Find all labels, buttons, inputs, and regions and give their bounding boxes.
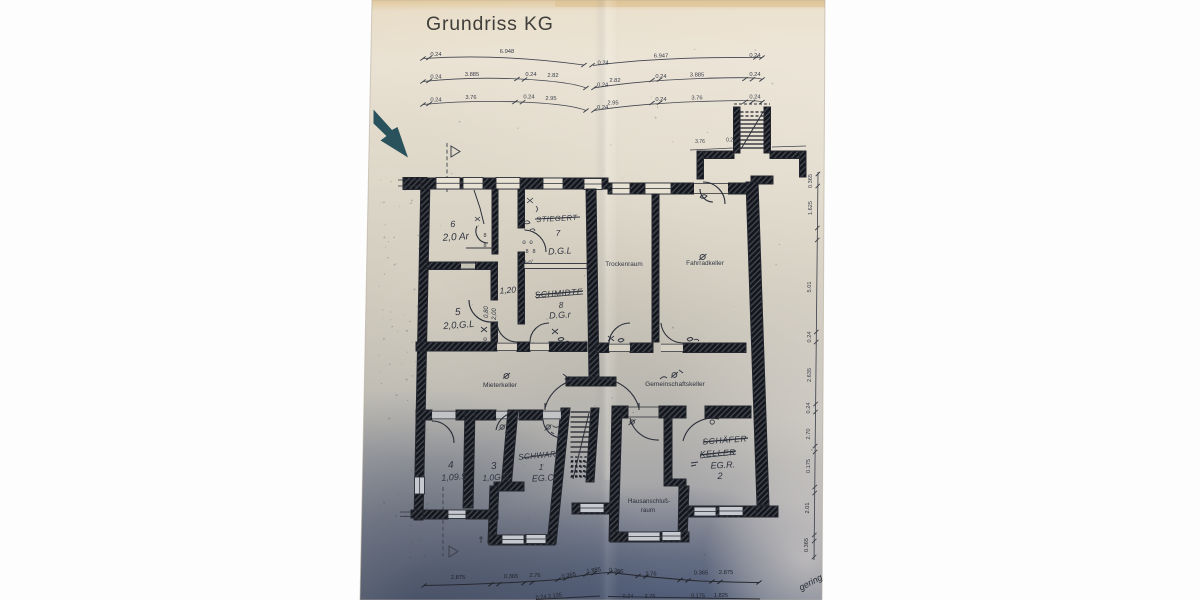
svg-text:1: 1 xyxy=(539,463,543,472)
svg-text:0.24: 0.24 xyxy=(430,75,442,81)
svg-text:2.875: 2.875 xyxy=(451,575,466,581)
svg-text:0.24: 0.24 xyxy=(430,52,442,58)
svg-text:2,0 Ar: 2,0 Ar xyxy=(441,231,470,244)
svg-text:8: 8 xyxy=(483,243,486,249)
svg-text:2.76: 2.76 xyxy=(529,573,540,579)
svg-text:2.70: 2.70 xyxy=(806,429,812,440)
svg-text:6: 6 xyxy=(450,219,456,229)
svg-text:6.947: 6.947 xyxy=(654,54,669,60)
svg-text:0.365: 0.365 xyxy=(808,174,814,188)
svg-text:0.175: 0.175 xyxy=(806,459,812,473)
svg-text:Mieterkeller: Mieterkeller xyxy=(483,382,518,389)
svg-text:2,00: 2,00 xyxy=(492,308,498,321)
svg-text:0.24: 0.24 xyxy=(749,72,761,78)
svg-text:0.24: 0.24 xyxy=(597,83,609,89)
svg-text:o-o': o-o' xyxy=(523,260,533,266)
svg-text:o: o xyxy=(483,336,487,343)
svg-text:0.24: 0.24 xyxy=(806,403,812,414)
svg-text:D.G.L: D.G.L xyxy=(548,245,572,256)
svg-text:0.365: 0.365 xyxy=(504,574,519,580)
svg-text:D.G.r: D.G.r xyxy=(549,309,572,320)
svg-text:2.01: 2.01 xyxy=(805,503,811,514)
svg-text:0.24: 0.24 xyxy=(523,95,535,101)
svg-text:2.82: 2.82 xyxy=(609,78,620,84)
svg-text:8: 8 xyxy=(483,233,486,239)
svg-text:3.885: 3.885 xyxy=(465,72,480,78)
svg-text:0.175: 0.175 xyxy=(691,594,705,600)
svg-text:7: 7 xyxy=(556,229,561,238)
svg-text:0,80: 0,80 xyxy=(484,306,490,318)
svg-text:2.82: 2.82 xyxy=(547,73,558,79)
svg-text:3.76: 3.76 xyxy=(695,139,705,145)
svg-text:1,20: 1,20 xyxy=(499,284,516,295)
svg-text:2,0.G.L: 2,0.G.L xyxy=(442,319,475,332)
svg-text:1,0G.C: 1,0G.C xyxy=(482,471,510,483)
svg-text:2.95: 2.95 xyxy=(545,96,556,102)
svg-text:3.885: 3.885 xyxy=(690,73,705,79)
svg-text:Grundriss KG: Grundriss KG xyxy=(426,13,554,35)
svg-text:EG.C: EG.C xyxy=(532,472,555,483)
svg-text:0.24: 0.24 xyxy=(807,332,813,343)
svg-text:0.24: 0.24 xyxy=(430,98,442,104)
svg-text:0.365: 0.365 xyxy=(694,571,709,577)
svg-text:Gemeinschaftskeller: Gemeinschaftskeller xyxy=(645,381,706,388)
svg-text:2: 2 xyxy=(716,471,722,481)
svg-text:2.95: 2.95 xyxy=(607,101,618,107)
svg-text:EG.R.: EG.R. xyxy=(710,459,735,470)
svg-text:0.365: 0.365 xyxy=(804,538,810,552)
svg-text:0.24: 0.24 xyxy=(749,53,761,59)
svg-text:Fahrradkeller: Fahrradkeller xyxy=(686,260,725,267)
svg-text:8: 8 xyxy=(525,249,528,255)
svg-text:0.24: 0.24 xyxy=(598,61,610,67)
svg-text:raum: raum xyxy=(641,507,655,514)
svg-text:6.948: 6.948 xyxy=(500,49,515,55)
svg-text:Hausanschluß-: Hausanschluß- xyxy=(628,498,670,505)
svg-text:2.875: 2.875 xyxy=(719,570,734,576)
svg-text:0.24: 0.24 xyxy=(749,95,761,101)
svg-text:2.76: 2.76 xyxy=(645,572,656,578)
svg-text:5.01: 5.01 xyxy=(807,282,813,293)
svg-text:0.24: 0.24 xyxy=(525,72,537,78)
svg-text:3.76: 3.76 xyxy=(691,96,702,102)
svg-text:0.24: 0.24 xyxy=(655,74,667,80)
svg-text:8: 8 xyxy=(532,249,535,255)
svg-text:Trockenraum: Trockenraum xyxy=(605,261,642,268)
svg-text:8: 8 xyxy=(559,301,564,310)
svg-text:1,09.5: 1,09.5 xyxy=(441,471,468,483)
svg-text:2.635: 2.635 xyxy=(807,368,813,382)
svg-text:0.24: 0.24 xyxy=(655,97,667,103)
svg-text:3.76: 3.76 xyxy=(465,95,476,101)
svg-text:1.625: 1.625 xyxy=(808,201,814,215)
